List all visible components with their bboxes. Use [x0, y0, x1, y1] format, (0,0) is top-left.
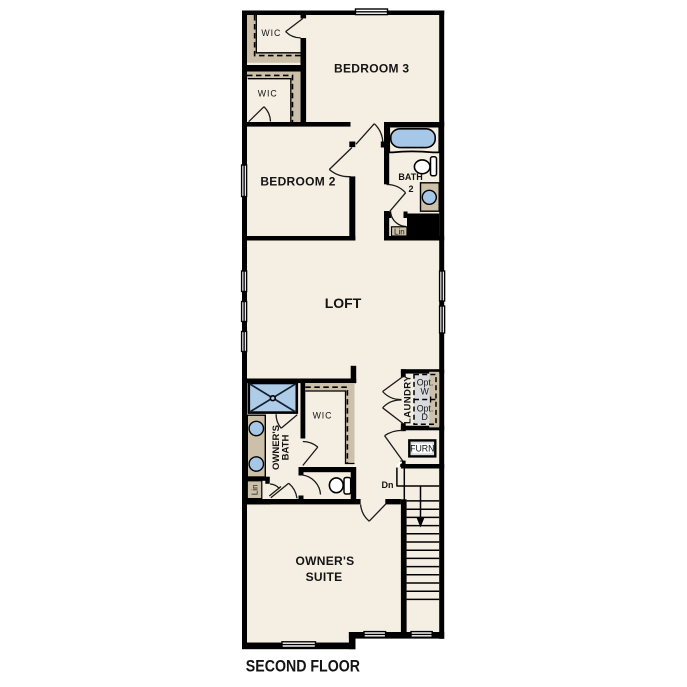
svg-text:WIC: WIC	[313, 410, 333, 420]
svg-text:WIC: WIC	[261, 28, 281, 38]
svg-text:BATH: BATH	[281, 435, 292, 461]
svg-text:BEDROOM 2: BEDROOM 2	[260, 174, 335, 188]
svg-text:W: W	[421, 386, 430, 396]
svg-text:SECOND FLOOR: SECOND FLOOR	[246, 657, 360, 676]
svg-text:D: D	[422, 412, 428, 422]
svg-text:SUITE: SUITE	[306, 570, 343, 584]
svg-text:Dn: Dn	[382, 480, 394, 490]
svg-text:Lin: Lin	[394, 227, 405, 236]
svg-text:BEDROOM 3: BEDROOM 3	[334, 62, 409, 76]
svg-text:BATH: BATH	[398, 172, 422, 182]
svg-text:LAUNDRY: LAUNDRY	[402, 375, 413, 424]
svg-text:LOFT: LOFT	[325, 295, 362, 311]
svg-text:Lin: Lin	[250, 484, 259, 495]
svg-text:2: 2	[408, 184, 413, 194]
svg-text:FURN: FURN	[410, 444, 434, 454]
svg-text:OWNER'S: OWNER'S	[296, 554, 355, 568]
svg-text:WIC: WIC	[258, 88, 278, 98]
